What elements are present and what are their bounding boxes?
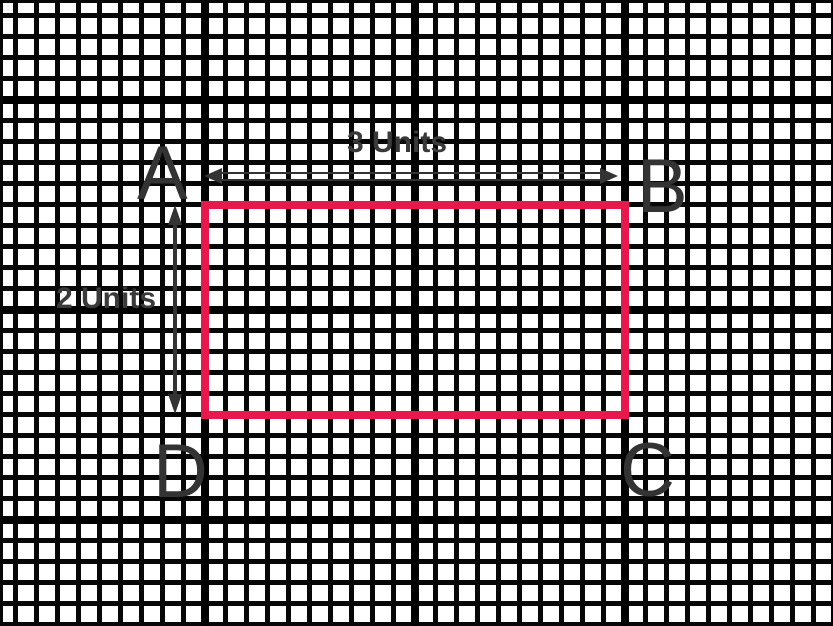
- arrow-right-icon: [600, 168, 618, 184]
- corner-label-b: B: [637, 149, 688, 225]
- width-dimension-arrow-shaft: [220, 172, 602, 181]
- width-dimension-label: 3 Units: [347, 128, 447, 158]
- rectangle-abcd: [201, 201, 629, 419]
- grid-top-edge-line: [0, 0, 833, 3]
- height-dimension-arrow-shaft: [173, 223, 177, 396]
- geometry-worksheet-figure: A B C D 3 Units 2 Units: [0, 0, 833, 626]
- corner-label-d: D: [153, 434, 208, 510]
- height-dimension-label: 2 Units: [56, 284, 156, 314]
- corner-label-c: C: [620, 433, 675, 509]
- arrow-left-icon: [204, 168, 222, 184]
- corner-label-a: A: [137, 136, 188, 212]
- grid-left-edge-line: [0, 0, 3, 626]
- arrow-down-icon: [168, 394, 182, 414]
